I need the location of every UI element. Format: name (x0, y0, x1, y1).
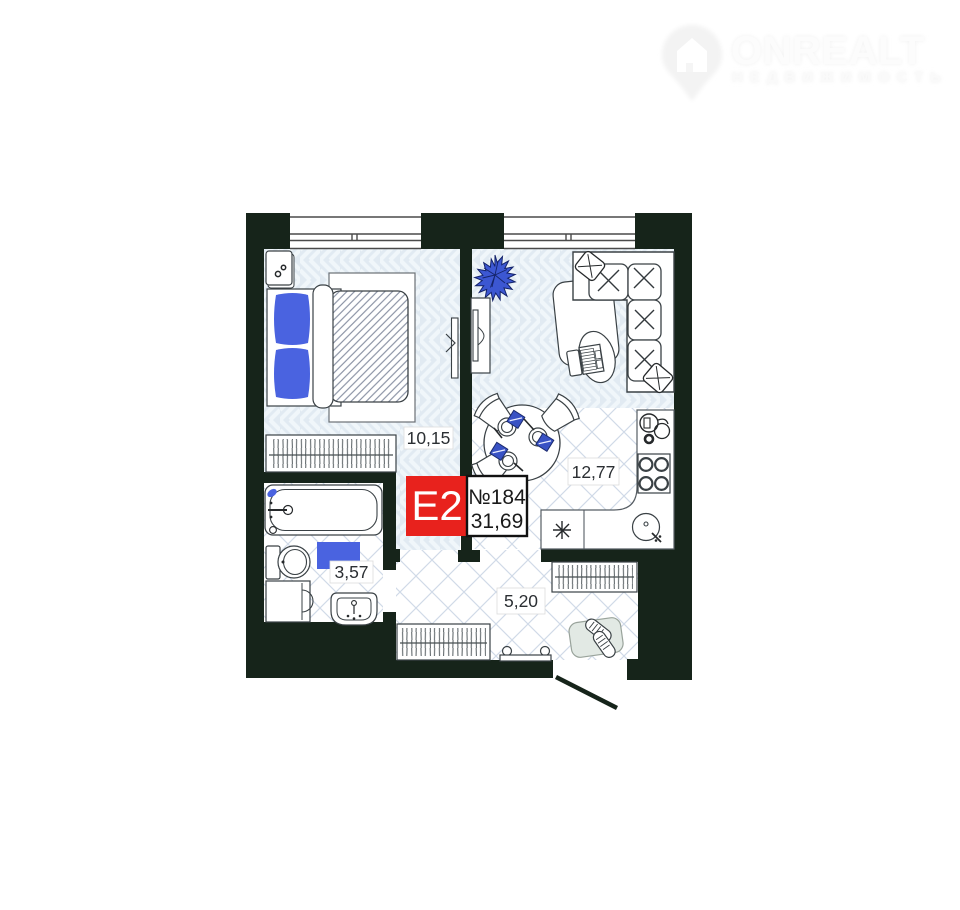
svg-text:№184: №184 (468, 486, 526, 509)
svg-text:E2: E2 (411, 482, 462, 529)
svg-text:ONREALT: ONREALT (731, 29, 925, 73)
svg-text:5,20: 5,20 (504, 591, 538, 611)
svg-text:НЕДВИЖИМОСТЬ: НЕДВИЖИМОСТЬ (732, 69, 948, 86)
svg-text:31,69: 31,69 (471, 510, 524, 533)
svg-text:12,77: 12,77 (572, 462, 616, 482)
svg-text:10,15: 10,15 (407, 428, 451, 448)
svg-text:3,57: 3,57 (334, 562, 368, 582)
